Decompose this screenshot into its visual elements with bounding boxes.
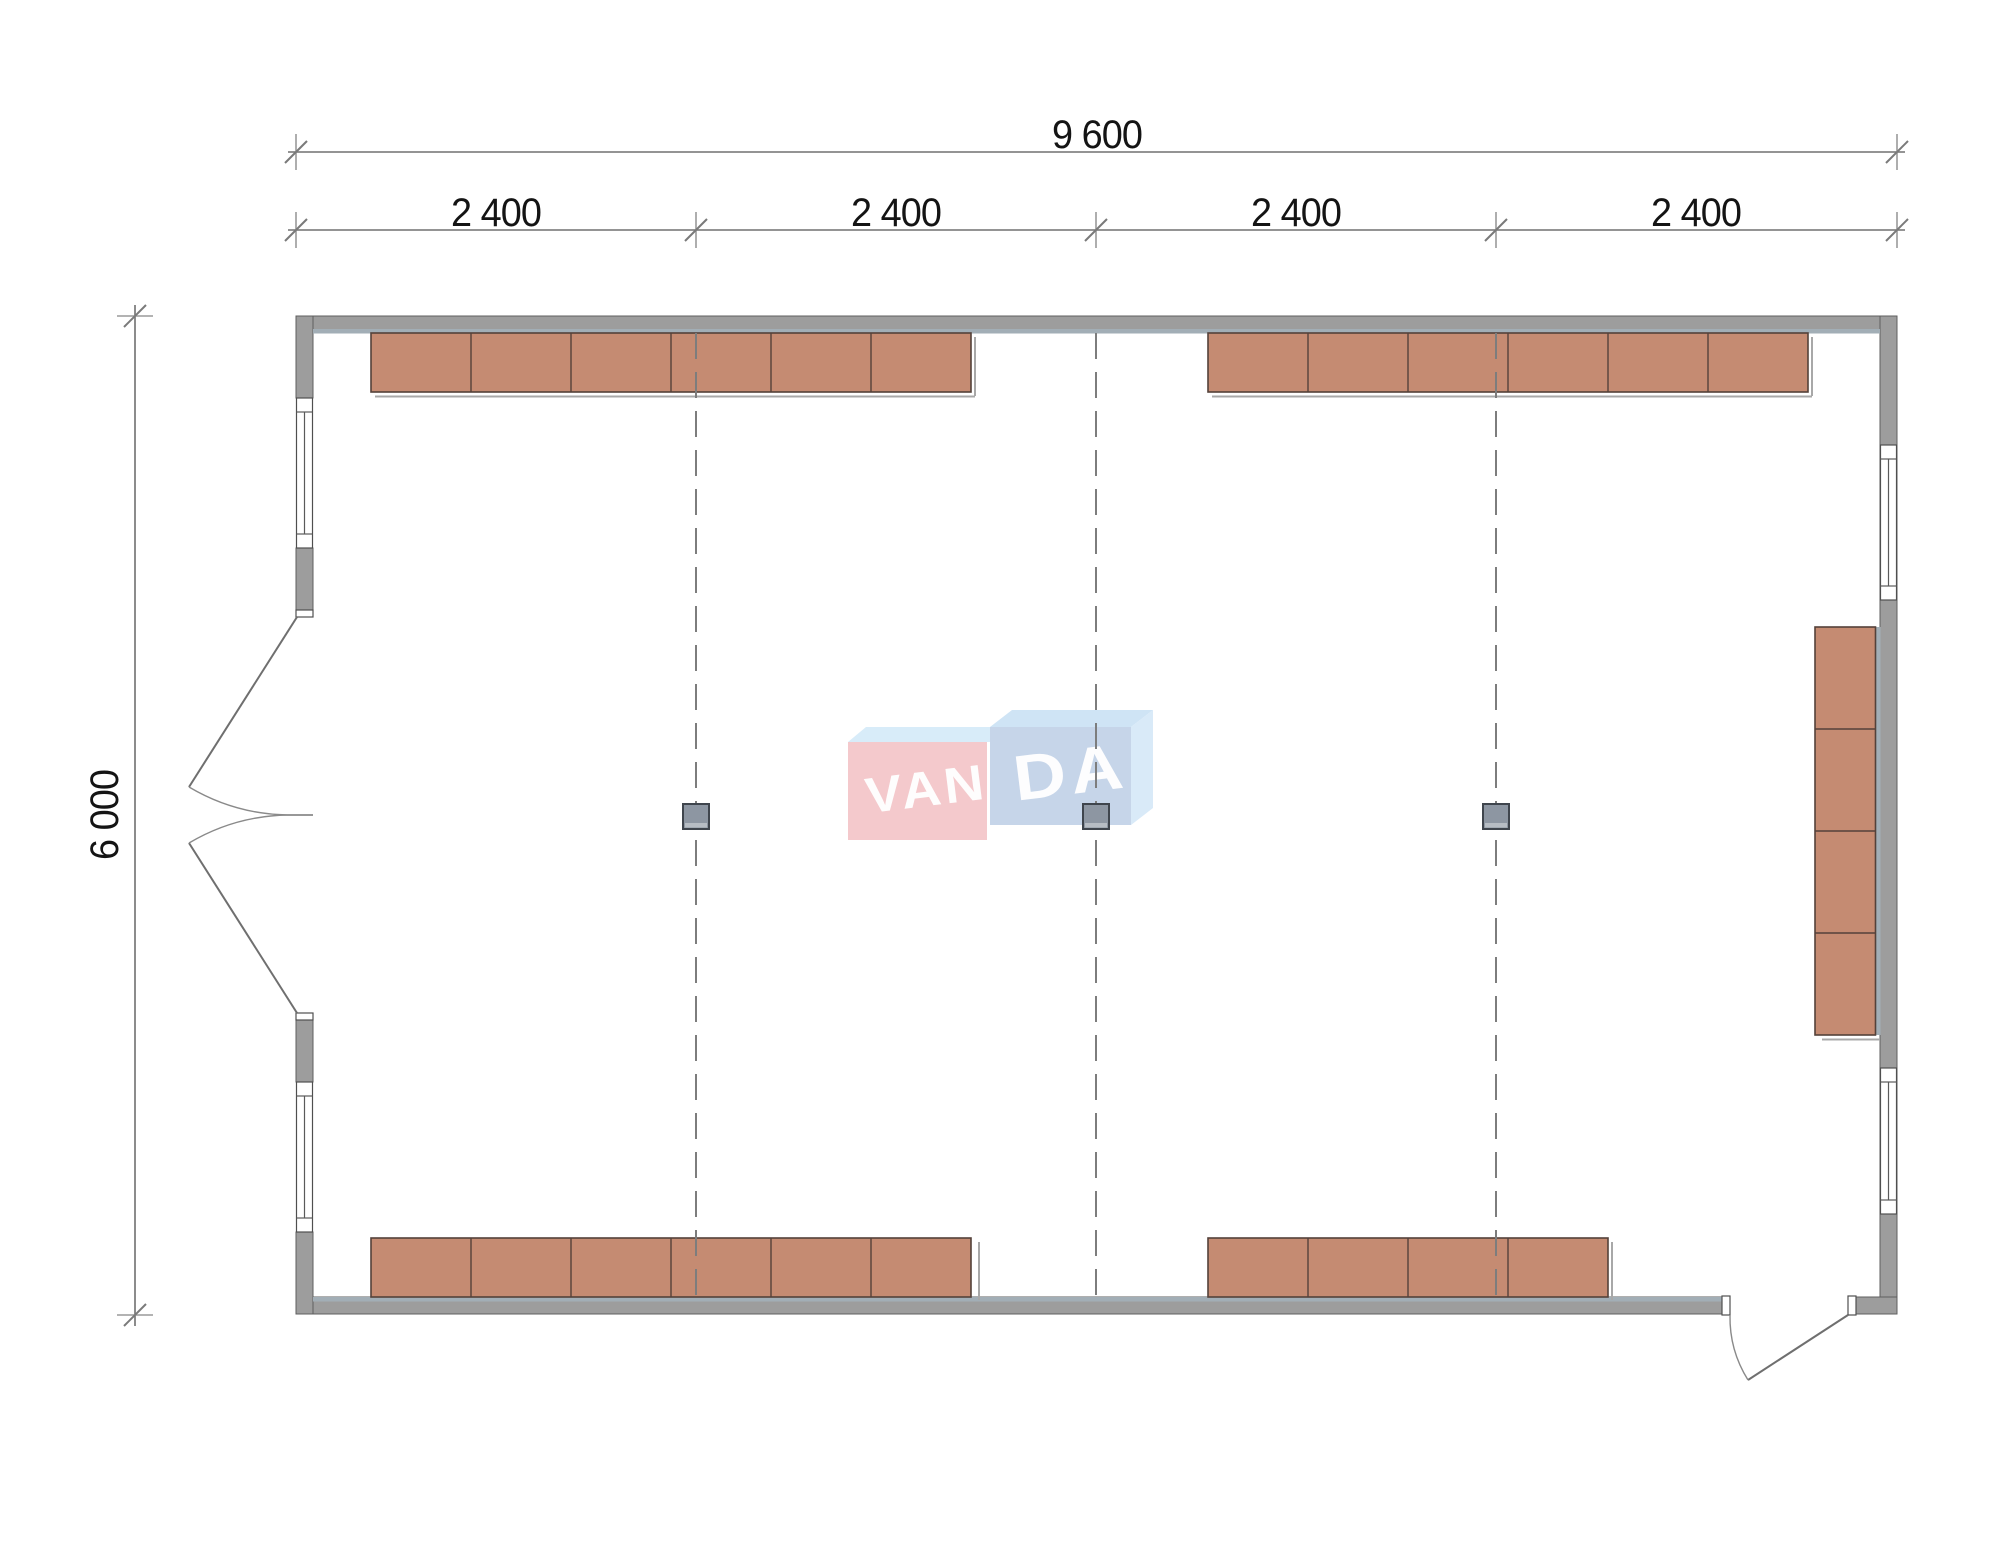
- door-leaf-top: [189, 617, 297, 787]
- overall-depth-label: 6 000: [83, 770, 127, 860]
- door-swing-arc: [1730, 1315, 1748, 1380]
- door-swing-arc: [189, 787, 288, 815]
- window-right-upper: [1881, 445, 1897, 600]
- door-jamb: [1848, 1296, 1856, 1315]
- door-leaf: [1748, 1315, 1848, 1380]
- logo-text-da: DA: [1009, 729, 1131, 814]
- dimension-overall-depth: 6 000: [83, 305, 153, 1326]
- logo-blue-top-face: [990, 710, 1153, 727]
- dimension-bays: 2 400 2 400 2 400 2 400: [285, 191, 1908, 248]
- door-sill: [296, 1013, 313, 1020]
- column-hatch: [1085, 823, 1107, 828]
- window-right-lower: [1881, 1068, 1897, 1214]
- bay-label-4: 2 400: [1651, 191, 1741, 235]
- desk-group-bottom-left: [371, 1238, 971, 1297]
- wall-left-segment: [296, 1020, 313, 1082]
- floor-plan-drawing: 9 600 2 400 2 400 2 400 2 400 6 000: [0, 0, 2000, 1550]
- window-left-upper: [297, 398, 313, 548]
- bay-label-1: 2 400: [451, 191, 541, 235]
- window-left-lower: [297, 1082, 313, 1232]
- door-leaf-bottom: [189, 843, 297, 1013]
- column: [683, 804, 709, 829]
- floor-plan-page: 9 600 2 400 2 400 2 400 2 400 6 000: [0, 0, 2000, 1550]
- bay-label-2: 2 400: [851, 191, 941, 235]
- logo-top-band: [848, 727, 1012, 742]
- wall-bottom-right-stub: [1856, 1297, 1897, 1314]
- column-hatch: [1485, 823, 1507, 828]
- single-door-bottom-right: [1722, 1296, 1856, 1380]
- column-hatch: [685, 823, 707, 828]
- desk-group-bottom-right: [1208, 1238, 1608, 1297]
- column: [1083, 804, 1109, 829]
- desk-group-top-right: [1208, 333, 1808, 392]
- door-sill: [296, 610, 313, 617]
- wall-left-segment: [296, 316, 313, 398]
- bay-label-3: 2 400: [1251, 191, 1341, 235]
- wall-left-segment: [296, 548, 313, 610]
- overall-width-label: 9 600: [1052, 113, 1142, 157]
- wall-left-segment: [296, 1232, 313, 1314]
- door-jamb: [1722, 1296, 1730, 1315]
- desk-group-top-left: [371, 333, 971, 392]
- double-door-left: [189, 610, 313, 1020]
- desk-group-right-wall: [1815, 627, 1876, 1035]
- columns: [683, 804, 1509, 829]
- column: [1483, 804, 1509, 829]
- door-swing-arc: [189, 815, 288, 843]
- logo-blue-side-face: [1131, 710, 1153, 825]
- dimension-overall-width: 9 600: [285, 113, 1908, 170]
